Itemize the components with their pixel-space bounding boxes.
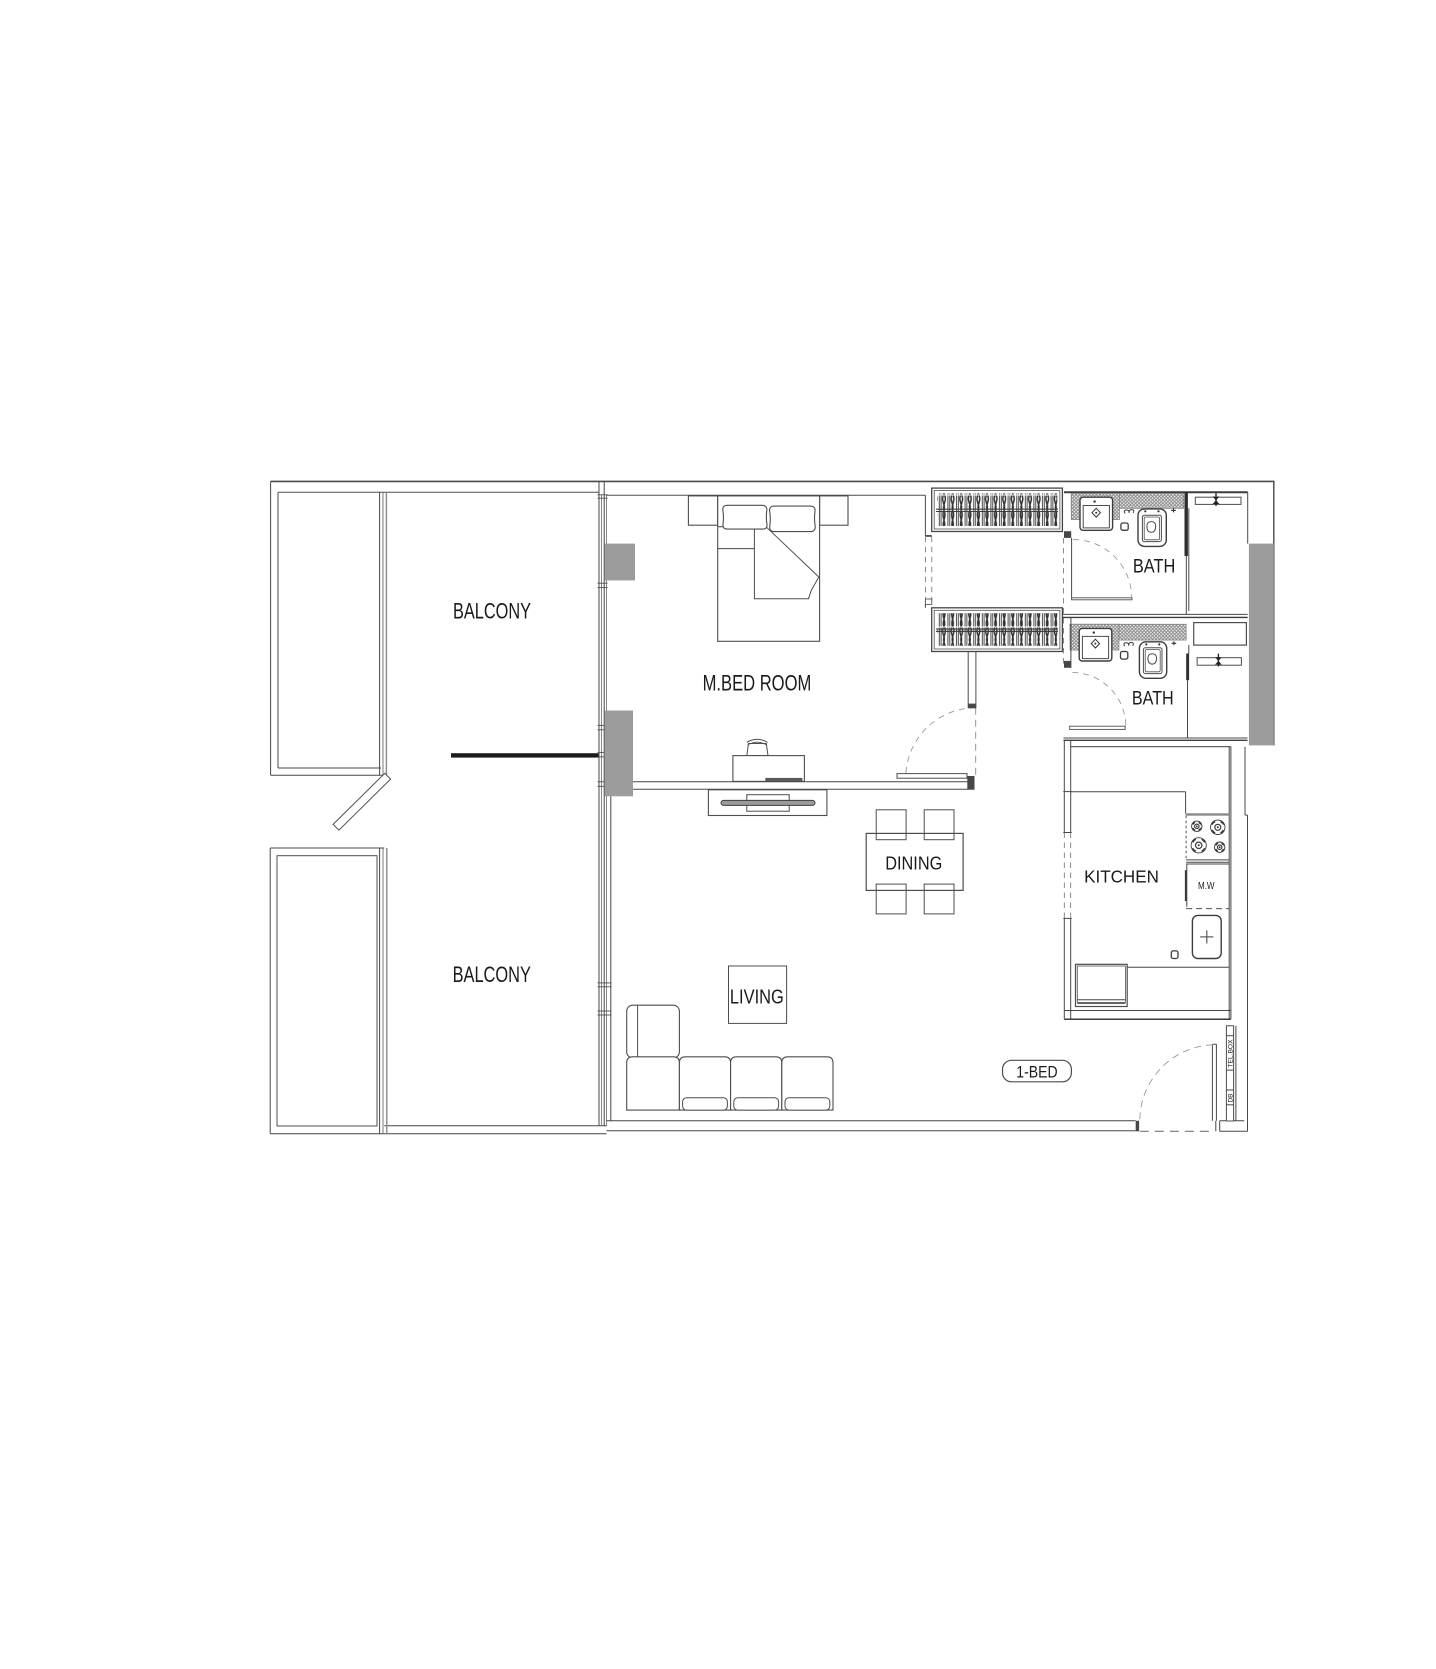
svg-text:KITCHEN: KITCHEN (1084, 867, 1159, 887)
svg-text:1-BED: 1-BED (1016, 1062, 1057, 1081)
svg-text:BATH: BATH (1133, 556, 1175, 577)
svg-text:BALCONY: BALCONY (453, 598, 531, 623)
svg-text:DB: DB (1228, 1093, 1235, 1102)
svg-text:BATH: BATH (1132, 688, 1174, 709)
svg-text:TEL.BOX: TEL.BOX (1228, 1039, 1235, 1067)
svg-text:DINING: DINING (885, 853, 942, 873)
svg-text:M.W: M.W (1198, 880, 1215, 892)
svg-text:LIVING: LIVING (730, 986, 784, 1008)
svg-text:BALCONY: BALCONY (453, 962, 532, 987)
svg-text:M.BED ROOM: M.BED ROOM (703, 670, 812, 695)
